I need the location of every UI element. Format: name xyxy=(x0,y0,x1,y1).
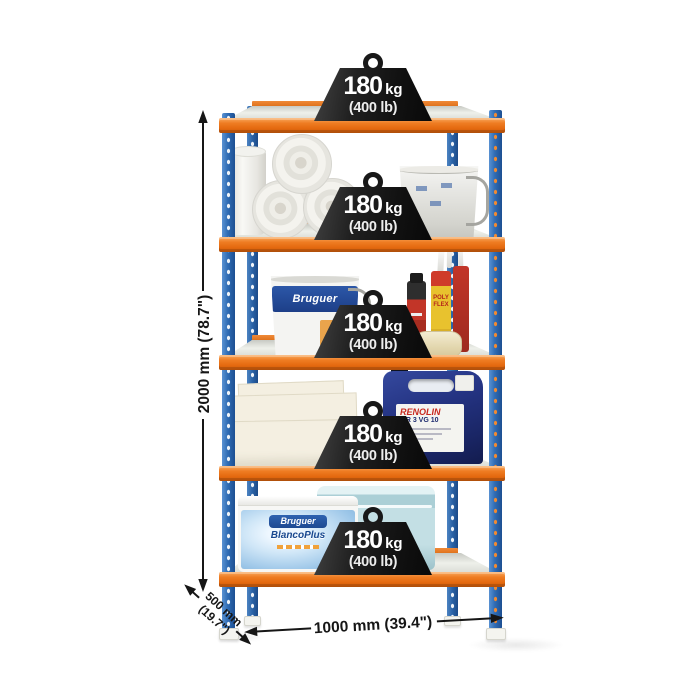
weight-value: 180 xyxy=(343,420,382,448)
product-image: Bruguer POLY FLEX RENOLIN MR 3 VG 10 Bru… xyxy=(0,0,700,700)
capacity-weight-4: 180kg (400 lb) xyxy=(314,401,432,469)
width-dimension-label: 1000 mm (39.4") xyxy=(313,614,432,638)
weight-body: 180kg (400 lb) xyxy=(314,416,432,469)
foot-rear-left xyxy=(244,616,261,626)
weight-unit: kg xyxy=(385,429,403,446)
capacity-weight-1: 180kg (400 lb) xyxy=(314,53,432,121)
height-dimension-label: 2000 mm (78.7") xyxy=(196,295,213,414)
weight-capacity-alt: (400 lb) xyxy=(314,449,432,464)
upright-front-left xyxy=(222,113,235,629)
arrow-up-icon xyxy=(198,110,207,123)
weight-capacity-alt: (400 lb) xyxy=(314,555,432,570)
capacity-weight-3: 180kg (400 lb) xyxy=(314,290,432,358)
weight-unit: kg xyxy=(385,200,403,217)
weight-capacity-alt: (400 lb) xyxy=(314,101,432,116)
weight-capacity: 180kg xyxy=(314,194,432,220)
weight-body: 180kg (400 lb) xyxy=(314,68,432,121)
jerrycan-sticker xyxy=(455,375,474,391)
depth-dimension-line xyxy=(189,589,199,598)
foot-front-left xyxy=(219,628,239,640)
capacity-weight-5: 180kg (400 lb) xyxy=(314,507,432,575)
foot-rear-right xyxy=(444,616,461,626)
weight-body: 180kg (400 lb) xyxy=(314,187,432,240)
tub-rim xyxy=(238,496,358,506)
weight-body: 180kg (400 lb) xyxy=(314,305,432,358)
capacity-weight-2: 180kg (400 lb) xyxy=(314,172,432,240)
weight-unit: kg xyxy=(385,81,403,98)
sealant-tube-label: POLY FLEX xyxy=(431,295,451,309)
height-dimension: 2000 mm (78.7") xyxy=(196,110,213,592)
width-dimension-line xyxy=(250,628,311,631)
weight-capacity-alt: (400 lb) xyxy=(314,338,432,353)
arrow-down-icon xyxy=(198,579,207,592)
weight-capacity: 180kg xyxy=(314,423,432,449)
tub-label-decoration xyxy=(277,545,319,549)
pail-label-mark xyxy=(441,183,452,188)
weight-capacity: 180kg xyxy=(314,75,432,101)
ground-shadow xyxy=(468,638,564,652)
weight-body: 180kg (400 lb) xyxy=(314,522,432,575)
weight-capacity: 180kg xyxy=(314,529,432,555)
weight-capacity: 180kg xyxy=(314,312,432,338)
weight-capacity-alt: (400 lb) xyxy=(314,220,432,235)
jerrycan-handle xyxy=(408,379,454,392)
weight-value: 180 xyxy=(343,526,382,554)
weight-value: 180 xyxy=(343,191,382,219)
spray-can-cap xyxy=(410,273,423,283)
weight-unit: kg xyxy=(385,535,403,552)
width-dimension: 1000 mm (39.4") xyxy=(244,610,505,641)
weight-value: 180 xyxy=(343,309,382,337)
pail-handle xyxy=(466,176,489,226)
weight-value: 180 xyxy=(343,72,382,100)
foot-front-right xyxy=(486,628,506,640)
arrow-up-left-icon xyxy=(181,581,196,596)
weight-unit: kg xyxy=(385,318,403,335)
